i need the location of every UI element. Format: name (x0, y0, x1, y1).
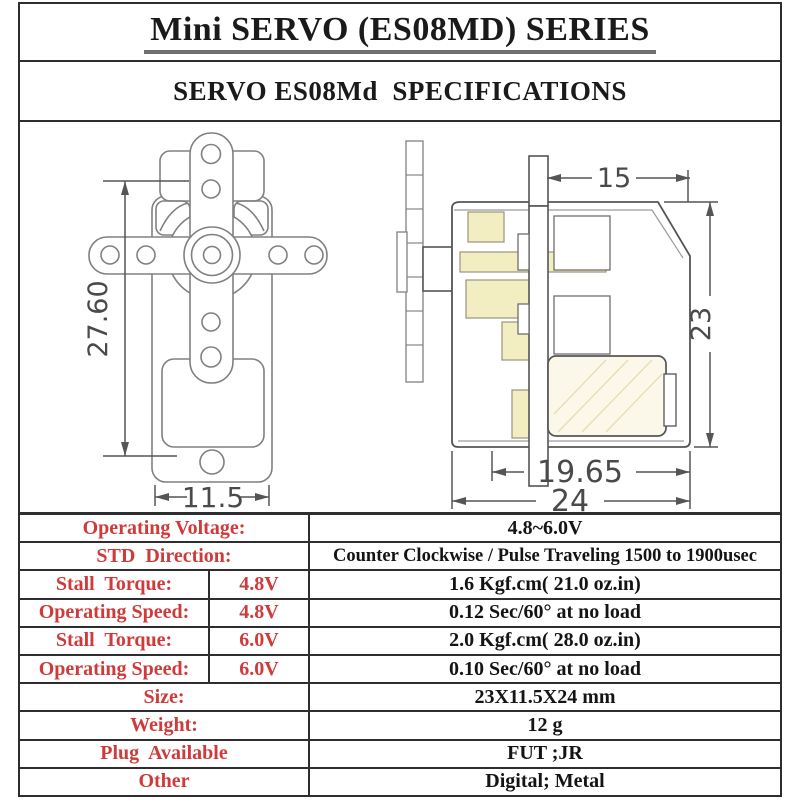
drawings-svg: 27.60 11.5 (20, 122, 784, 512)
spec-label: STD Direction: (20, 543, 308, 569)
spec-label: Operating Speed: (20, 656, 208, 682)
dim-side-top: 15 (597, 163, 631, 194)
table-row: STD Direction: Counter Clockwise / Pulse… (20, 541, 780, 569)
sheet-frame: Mini SERVO (ES08MD) SERIES SERVO ES08Md … (18, 2, 782, 797)
specifications-table: Operating Voltage: 4.8~6.0V STD Directio… (20, 512, 780, 795)
spec-sheet: Mini SERVO (ES08MD) SERIES SERVO ES08Md … (0, 0, 800, 800)
spec-label: Size: (20, 684, 308, 710)
dim-front-width: 11.5 (182, 481, 244, 512)
spec-value: 4.8~6.0V (308, 515, 780, 541)
table-row: Operating Speed: 6.0V 0.10 Sec/60° at no… (20, 654, 780, 682)
dim-side-right: 23 (686, 307, 717, 341)
spec-value: Digital; Metal (308, 769, 780, 795)
spec-label: Weight: (20, 712, 308, 738)
spec-value: 1.6 Kgf.cm( 21.0 oz.in) (308, 571, 780, 597)
table-row: Stall Torque: 6.0V 2.0 Kgf.cm( 28.0 oz.i… (20, 626, 780, 654)
dim-side-bottom-outer: 24 (551, 484, 589, 512)
spec-label: Stall Torque: (20, 628, 208, 654)
spec-value: 0.10 Sec/60° at no load (308, 656, 780, 682)
spec-voltage: 4.8V (208, 600, 308, 626)
page-subtitle: SERVO ES08Md SPECIFICATIONS (173, 76, 627, 107)
spec-label: Other (20, 769, 308, 795)
table-row: Operating Speed: 4.8V 0.12 Sec/60° at no… (20, 598, 780, 626)
spec-value: 2.0 Kgf.cm( 28.0 oz.in) (308, 628, 780, 654)
spec-label: Operating Speed: (20, 600, 208, 626)
title-row: Mini SERVO (ES08MD) SERIES (20, 4, 780, 62)
subtitle-row: SERVO ES08Md SPECIFICATIONS (20, 62, 780, 122)
spec-value: 12 g (308, 712, 780, 738)
technical-drawings: 27.60 11.5 (20, 122, 780, 512)
spec-label: Plug Available (20, 741, 308, 767)
table-row: Other Digital; Metal (20, 767, 780, 795)
table-row: Size: 23X11.5X24 mm (20, 682, 780, 710)
spec-value: 23X11.5X24 mm (308, 684, 780, 710)
spec-label: Stall Torque: (20, 571, 208, 597)
spec-voltage: 6.0V (208, 628, 308, 654)
spec-voltage: 6.0V (208, 656, 308, 682)
side-view-drawing (397, 141, 690, 486)
table-row: Operating Voltage: 4.8~6.0V (20, 515, 780, 541)
table-row: Weight: 12 g (20, 710, 780, 738)
spec-value: 0.12 Sec/60° at no load (308, 600, 780, 626)
dim-front-height: 27.60 (83, 280, 114, 357)
table-row: Stall Torque: 4.8V 1.6 Kgf.cm( 21.0 oz.i… (20, 569, 780, 597)
spec-value: FUT ;JR (308, 741, 780, 767)
table-row: Plug Available FUT ;JR (20, 739, 780, 767)
spec-voltage: 4.8V (208, 571, 308, 597)
spec-value: Counter Clockwise / Pulse Traveling 1500… (308, 543, 780, 569)
page-title: Mini SERVO (ES08MD) SERIES (144, 11, 656, 54)
spec-label: Operating Voltage: (20, 515, 308, 541)
